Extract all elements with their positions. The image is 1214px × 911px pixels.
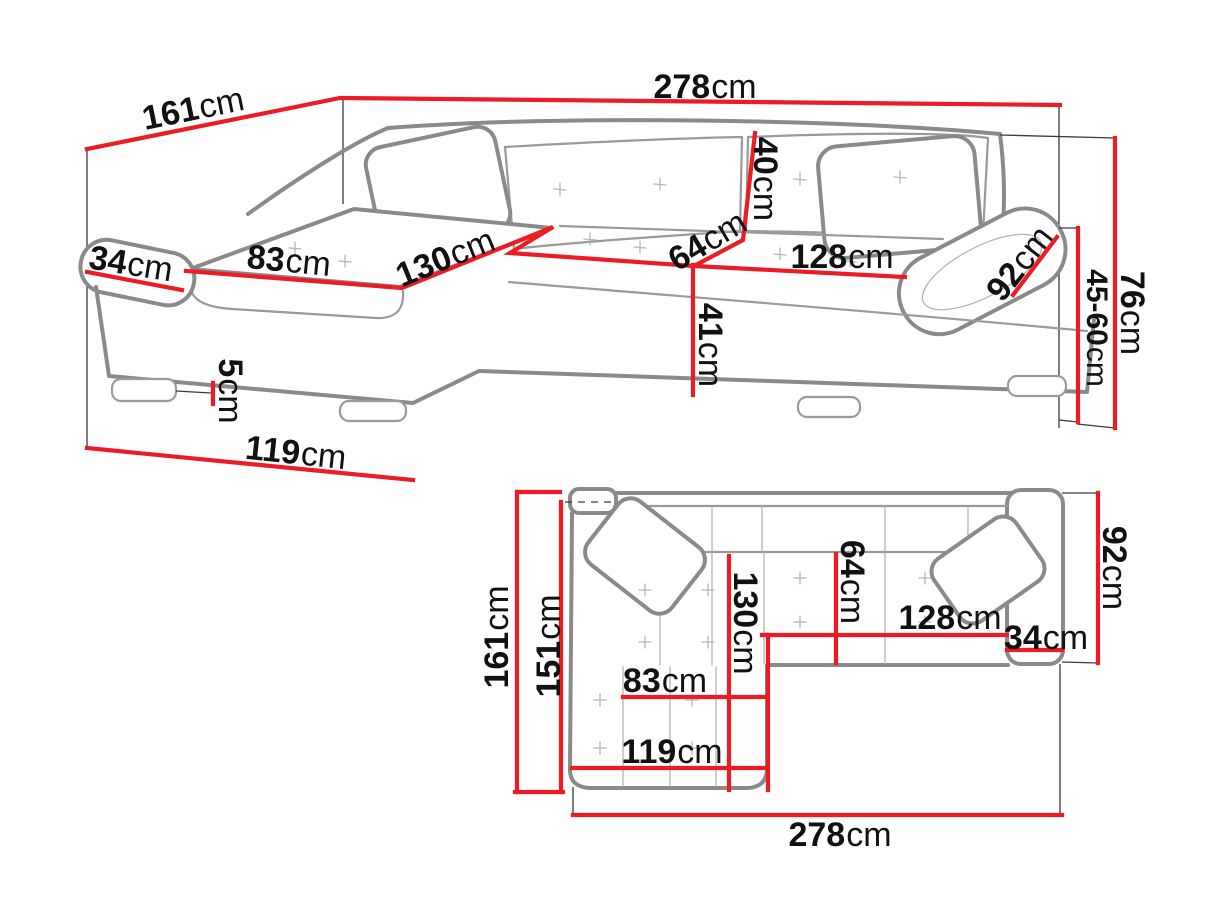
label-right-armrest-length-plan: 92cm	[1095, 526, 1133, 610]
dimension-labels-perspective: 278cm 161cm 34cm 83cm 130cm 40cm 64cm 12…	[86, 68, 1151, 477]
leg	[1008, 376, 1066, 396]
label-height-range: 45-60cm	[1080, 269, 1113, 387]
label-chaise-seat-length-plan: 130cm	[726, 571, 764, 674]
label-seat-depth-plan: 64cm	[833, 540, 871, 624]
label-chaise-seat-width: 83cm	[245, 238, 332, 284]
label-right-armrest-width-plan: 34cm	[1004, 619, 1088, 657]
label-backrest-height: 40cm	[746, 137, 784, 221]
label-chaise-front-width: 119cm	[244, 429, 349, 477]
label-overall-width-plan: 278cm	[788, 816, 891, 854]
label-total-height: 76cm	[1113, 271, 1151, 355]
plan-back-corner-block	[570, 489, 616, 513]
label-chaise-front-width-plan: 119cm	[621, 733, 722, 771]
leg	[798, 397, 860, 417]
leg	[112, 379, 176, 401]
label-leg-height: 5cm	[211, 358, 249, 423]
label-seat-width-plan: 128cm	[898, 599, 1001, 637]
label-overall-width: 278cm	[653, 68, 756, 106]
label-seat-height: 41cm	[691, 303, 729, 387]
leg	[340, 401, 406, 421]
label-chaise-seat-width-plan: 83cm	[623, 662, 707, 700]
label-seat-width: 128cm	[790, 238, 893, 276]
label-overall-depth-plan: 161cm	[478, 585, 516, 688]
diagram-canvas: 278cm 161cm 34cm 83cm 130cm 40cm 64cm 12…	[0, 0, 1214, 911]
label-chaise-length-inner-plan: 151cm	[530, 594, 568, 697]
sofa-dimension-diagram: 278cm 161cm 34cm 83cm 130cm 40cm 64cm 12…	[0, 0, 1214, 911]
